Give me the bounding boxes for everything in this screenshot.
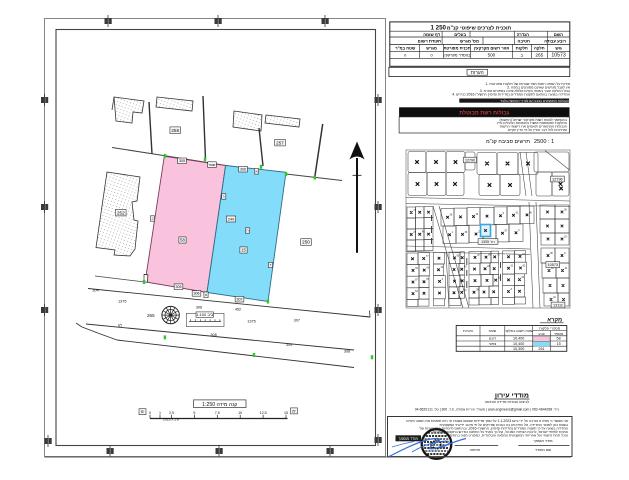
svg-text:2500 : 1: 2500 : 1 — [534, 139, 554, 145]
svg-text:77: 77 — [426, 255, 429, 258]
svg-text:חלקות: חלקות — [516, 45, 528, 50]
svg-text:90: 90 — [457, 254, 460, 257]
svg-text:305: 305 — [176, 285, 182, 289]
svg-text:1375: 1375 — [247, 320, 255, 324]
svg-text:308: 308 — [210, 333, 216, 337]
svg-text:10,300: 10,300 — [513, 347, 524, 351]
svg-text:40: 40 — [464, 266, 467, 269]
svg-text:0: 0 — [430, 53, 433, 58]
svg-text:309: 309 — [286, 343, 292, 347]
svg-text:13111: 13111 — [553, 303, 563, 307]
svg-text:אזור רשום מקרקעין: אזור רשום מקרקעין — [474, 45, 510, 50]
svg-text:תרשים סביבה קנ"מ: תרשים סביבה קנ"מ — [486, 139, 530, 145]
svg-text:87: 87 — [415, 278, 418, 281]
svg-text:41: 41 — [553, 296, 556, 299]
svg-text:8: 8 — [511, 288, 513, 291]
svg-text:ביב 1:100: ביב 1:100 — [196, 312, 213, 317]
svg-text:9: 9 — [564, 252, 566, 255]
svg-text:265: 265 — [147, 313, 155, 318]
svg-text:261: 261 — [538, 347, 544, 351]
svg-text:10: 10 — [238, 411, 242, 415]
svg-text:0: 0 — [149, 411, 151, 415]
svg-text:265: 265 — [535, 53, 543, 59]
svg-text:תעודת רשום: תעודת רשום — [418, 39, 441, 44]
svg-text:62: 62 — [523, 264, 526, 267]
svg-text:26: 26 — [450, 214, 453, 217]
svg-text:שטח: שטח — [489, 329, 497, 333]
svg-text:הגבולות המסומנים בצבע הם לצרכי: הגבולות המסומנים בצבע הם לצרכי המחשה בלב… — [500, 99, 569, 103]
svg-text:והכל תחת פיקוחי ועל אחריותי המ: והכל תחת פיקוחי ועל אחריותי המקצועית המל… — [446, 434, 568, 438]
svg-text:12796: 12796 — [552, 177, 563, 181]
svg-text:306: 306 — [194, 292, 200, 296]
svg-text:78: 78 — [413, 209, 416, 212]
svg-text:50: 50 — [564, 208, 567, 211]
svg-text:השם: השם — [554, 32, 563, 37]
svg-text:305: 305 — [179, 159, 185, 163]
svg-text:4. המדידה בוצעה בהתאם לתקנות ה: 4. המדידה בוצעה בהתאם לתקנות המודדים (מד… — [452, 92, 570, 96]
svg-text:ומחייבים לכל דבר ועניין על פי: ומחייבים לכל דבר ועניין על פי הדין הקיים — [508, 128, 567, 132]
svg-text:58: 58 — [180, 238, 185, 243]
svg-text:צפוני: צפוני — [489, 342, 497, 346]
svg-text:39: 39 — [465, 231, 468, 234]
svg-text:מספרי חלקות: מספרי חלקות — [539, 327, 561, 331]
svg-text:הערות: הערות — [463, 329, 474, 333]
svg-text:משרד: עיריית אפולה, ת.ד. 300 |: משרד: עיריית אפולה, ת.ד. 300 | טל: 04-65… — [415, 408, 560, 412]
svg-text:מגרש: מגרש — [426, 45, 437, 50]
svg-text:ד: ד — [270, 263, 272, 267]
svg-text:צבע: צבע — [538, 332, 544, 336]
svg-text:מספר: מספר — [554, 332, 563, 336]
svg-text:מס' מגרש: מס' מגרש — [460, 39, 479, 44]
svg-text:בעלים: בעלים — [454, 32, 466, 37]
svg-text:חלקה: חלקה — [534, 45, 545, 50]
svg-text:258: 258 — [171, 128, 179, 133]
svg-text:א.ב.ג 2023: א.ב.ג 2023 — [163, 418, 180, 422]
svg-text:ב: ב — [151, 217, 153, 221]
svg-text:הגדרה: הגדרה — [517, 32, 530, 37]
svg-text:תוכנית לצרכים שיפוטי קנ"מ: תוכנית לצרכים שיפוטי קנ"מ — [447, 25, 512, 32]
svg-text:7.5: 7.5 — [215, 411, 220, 415]
svg-text:ה: ה — [246, 229, 248, 233]
svg-text:47: 47 — [477, 254, 480, 257]
svg-text:ב: ב — [521, 53, 524, 58]
svg-text:10,400: 10,400 — [513, 342, 524, 346]
svg-text:58: 58 — [557, 337, 561, 341]
svg-text:רובע עבודה: רובע עבודה — [544, 39, 566, 44]
svg-text:רח' 1305: רח' 1305 — [481, 240, 495, 244]
svg-text:לח: לח — [118, 324, 122, 328]
svg-text:44: 44 — [565, 267, 568, 270]
svg-text:בהסדר מקרקעין: בהסדר מקרקעין — [444, 53, 472, 58]
svg-text:5: 5 — [193, 411, 195, 415]
svg-text:10573: 10573 — [548, 263, 559, 267]
svg-text:מ': מ' — [141, 409, 145, 414]
svg-text:דף שומה: דף שומה — [423, 32, 440, 37]
svg-text:מקרא: מקרא — [547, 317, 562, 323]
svg-text:שטח רשום בחלקה: שטח רשום בחלקה — [504, 329, 533, 333]
svg-text:0: 0 — [404, 53, 407, 58]
svg-text:307: 307 — [294, 318, 300, 322]
svg-text:גוש: גוש — [555, 45, 562, 50]
svg-text:12.5: 12.5 — [260, 411, 267, 415]
svg-text:54: 54 — [415, 290, 418, 293]
svg-text:46: 46 — [529, 211, 532, 214]
svg-text:חתימה: חתימה — [470, 448, 481, 452]
svg-text:257: 257 — [276, 140, 284, 145]
svg-text:500: 500 — [488, 53, 496, 58]
svg-text:15: 15 — [284, 411, 288, 415]
svg-text:מודד מוסמך: מודד מוסמך — [534, 439, 553, 443]
svg-text:לביצוע עבודות מדידה והנדסה: לביצוע עבודות מדידה והנדסה — [485, 400, 529, 404]
svg-text:2.5: 2.5 — [169, 411, 174, 415]
svg-text:19: 19 — [564, 235, 567, 238]
svg-text:304: 304 — [92, 289, 98, 293]
svg-text:10,400: 10,400 — [513, 337, 524, 341]
svg-text:33: 33 — [415, 267, 418, 270]
svg-text:שטח במ"ר: שטח במ"ר — [395, 45, 416, 50]
svg-text:306: 306 — [240, 167, 246, 171]
svg-text:91: 91 — [516, 212, 519, 215]
svg-text:46: 46 — [476, 213, 479, 216]
svg-text:שם המודד: שם המודד — [535, 448, 551, 452]
svg-text:24: 24 — [464, 289, 467, 292]
svg-text:308: 308 — [344, 350, 350, 354]
svg-text:15: 15 — [241, 248, 246, 253]
svg-text:307: 307 — [237, 297, 243, 301]
svg-text:306: 306 — [196, 306, 202, 310]
svg-text:27: 27 — [413, 231, 416, 234]
svg-text:קנה מידה 1:250: קנה מידה 1:250 — [202, 402, 237, 408]
svg-text:87: 87 — [505, 230, 508, 233]
svg-text:61: 61 — [511, 265, 514, 268]
svg-text:452: 452 — [235, 308, 241, 312]
svg-text:1375: 1375 — [118, 300, 126, 304]
svg-text:9: 9 — [503, 212, 505, 215]
svg-text:1: 1 — [452, 231, 454, 234]
svg-text:96: 96 — [550, 252, 553, 255]
svg-text:תכנית מפורטת: תכנית מפורטת — [443, 45, 470, 50]
svg-text:מודד מוסמך: מודד מוסמך — [398, 437, 418, 441]
svg-text:250: 250 — [302, 240, 310, 245]
svg-text:1 250: 1 250 — [431, 25, 447, 32]
svg-text:שצפ: שצפ — [209, 163, 216, 167]
svg-text:גבולות רשת מבוטלת: גבולות רשת מבוטלת — [459, 109, 510, 116]
svg-text:15: 15 — [557, 342, 561, 346]
svg-text:חטיבה: חטיבה — [517, 39, 530, 44]
svg-text:3: 3 — [442, 278, 444, 281]
svg-text:252: 252 — [117, 210, 125, 215]
svg-text:12790: 12790 — [465, 158, 475, 162]
svg-text:10573: 10573 — [551, 53, 566, 59]
svg-text:40: 40 — [422, 231, 425, 234]
svg-text:הערות: הערות — [471, 71, 484, 76]
svg-text:249: 249 — [228, 216, 235, 221]
svg-text:מ': מ' — [292, 408, 296, 413]
svg-text:3: 3 — [518, 229, 520, 232]
svg-text:דונם: דונם — [489, 337, 496, 341]
svg-text:1: 1 — [159, 411, 161, 415]
